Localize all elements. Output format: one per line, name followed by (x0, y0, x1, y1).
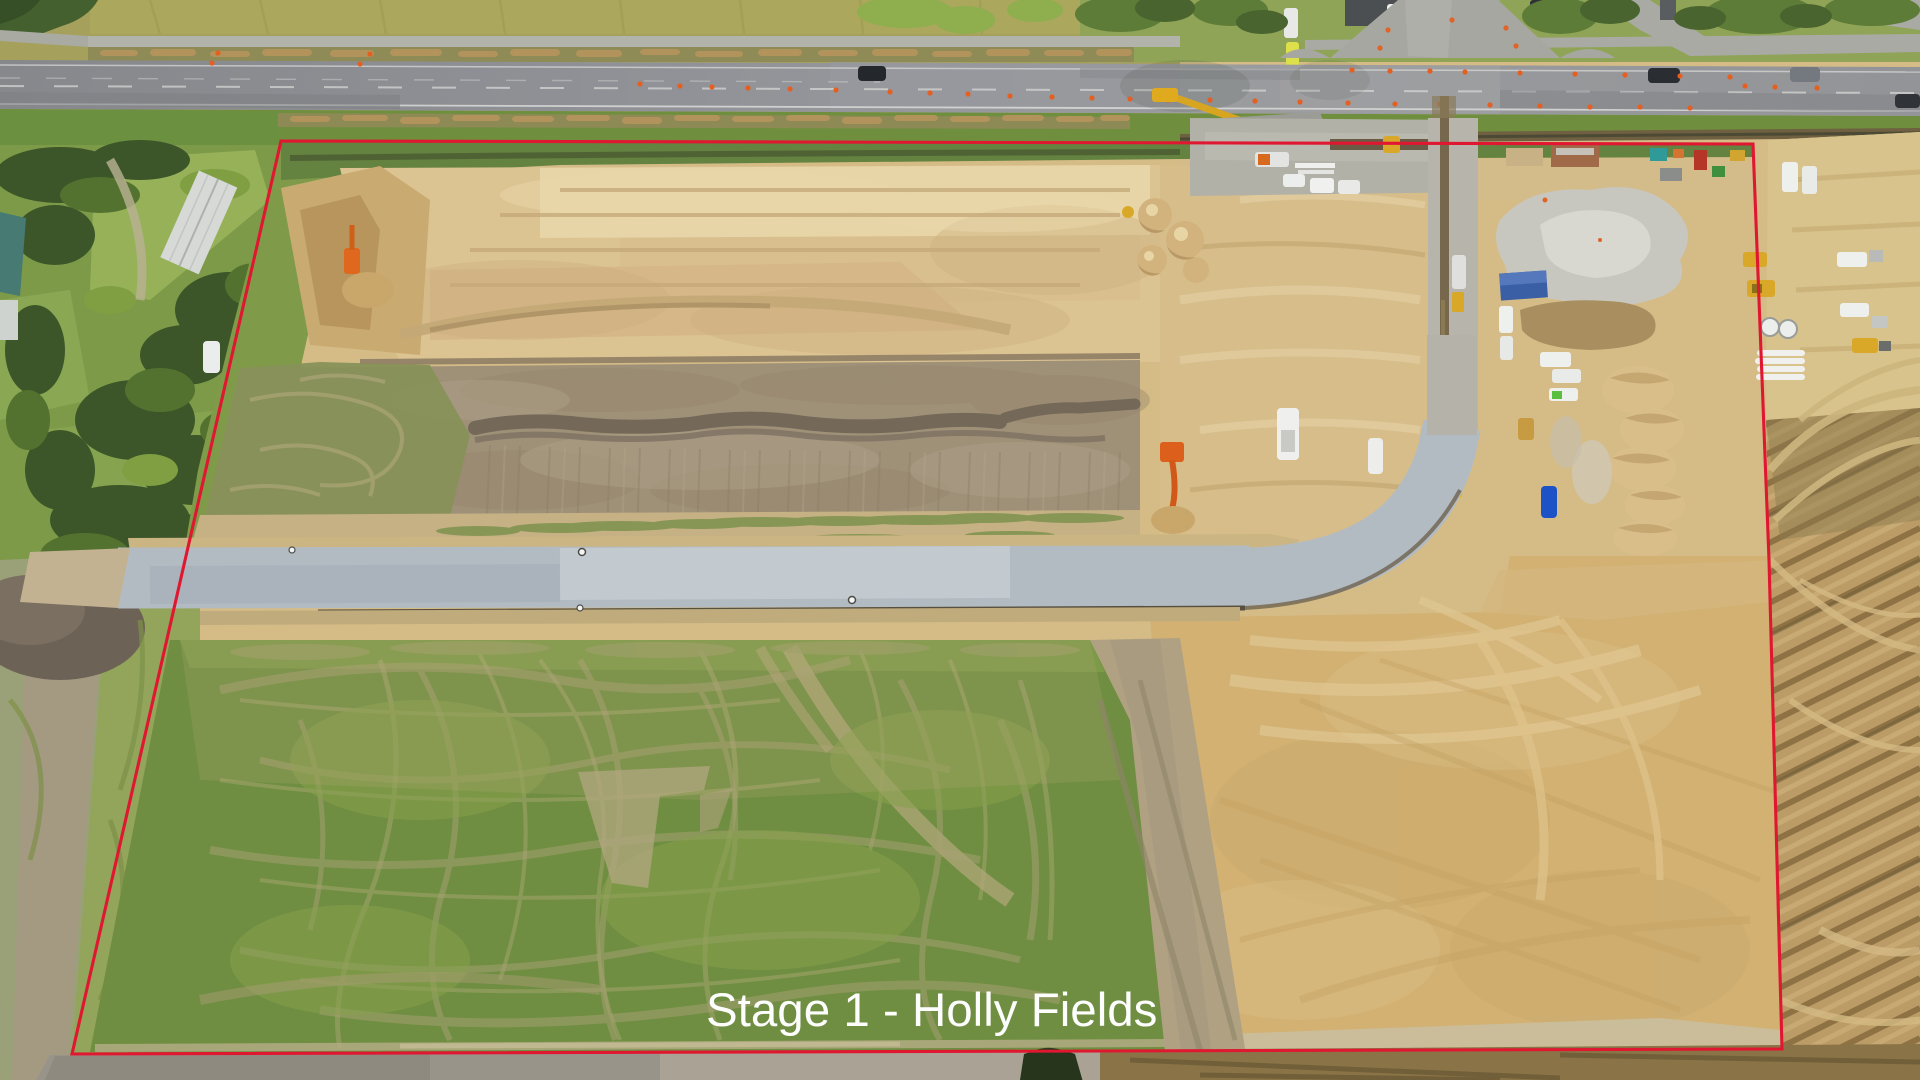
svg-text:Stage 1 - Holly Fields: Stage 1 - Holly Fields (706, 984, 1157, 1037)
